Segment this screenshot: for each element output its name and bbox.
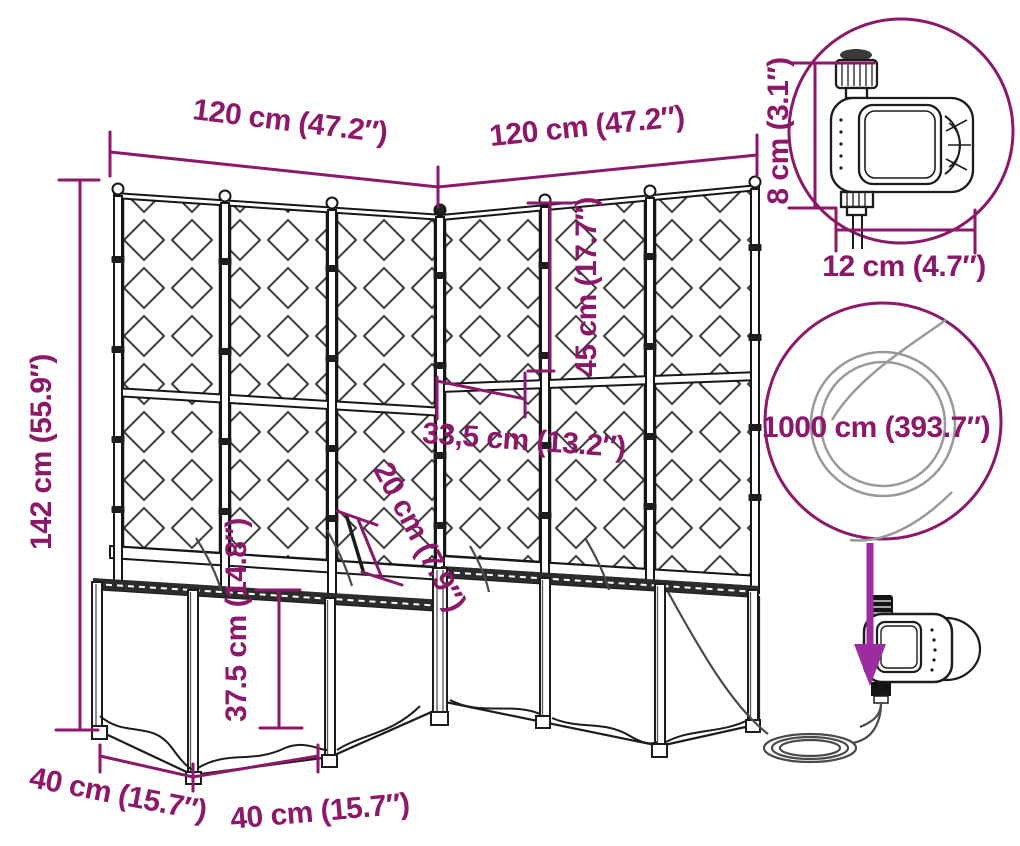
dim-hose-length-label: 1000 cm (393.7″) <box>762 411 990 445</box>
dim-timer-width-label: 12 cm (4.7″) <box>822 250 985 284</box>
dim-trellis-height-label: 45 cm (17.7″) <box>570 197 604 377</box>
product-dimension-diagram: 120 cm (47.2″) 120 cm (47.2″) 142 cm (55… <box>0 0 1020 846</box>
timer-callout-circle <box>789 19 1013 249</box>
dim-overall-height-label: 142 cm (55.9″) <box>25 354 59 550</box>
dim-timer-height-label: 8 cm (3.1″) <box>762 57 796 204</box>
planter-boxes <box>92 566 760 784</box>
dim-planter-height-label: 37.5 cm (14.8″) <box>220 518 254 722</box>
